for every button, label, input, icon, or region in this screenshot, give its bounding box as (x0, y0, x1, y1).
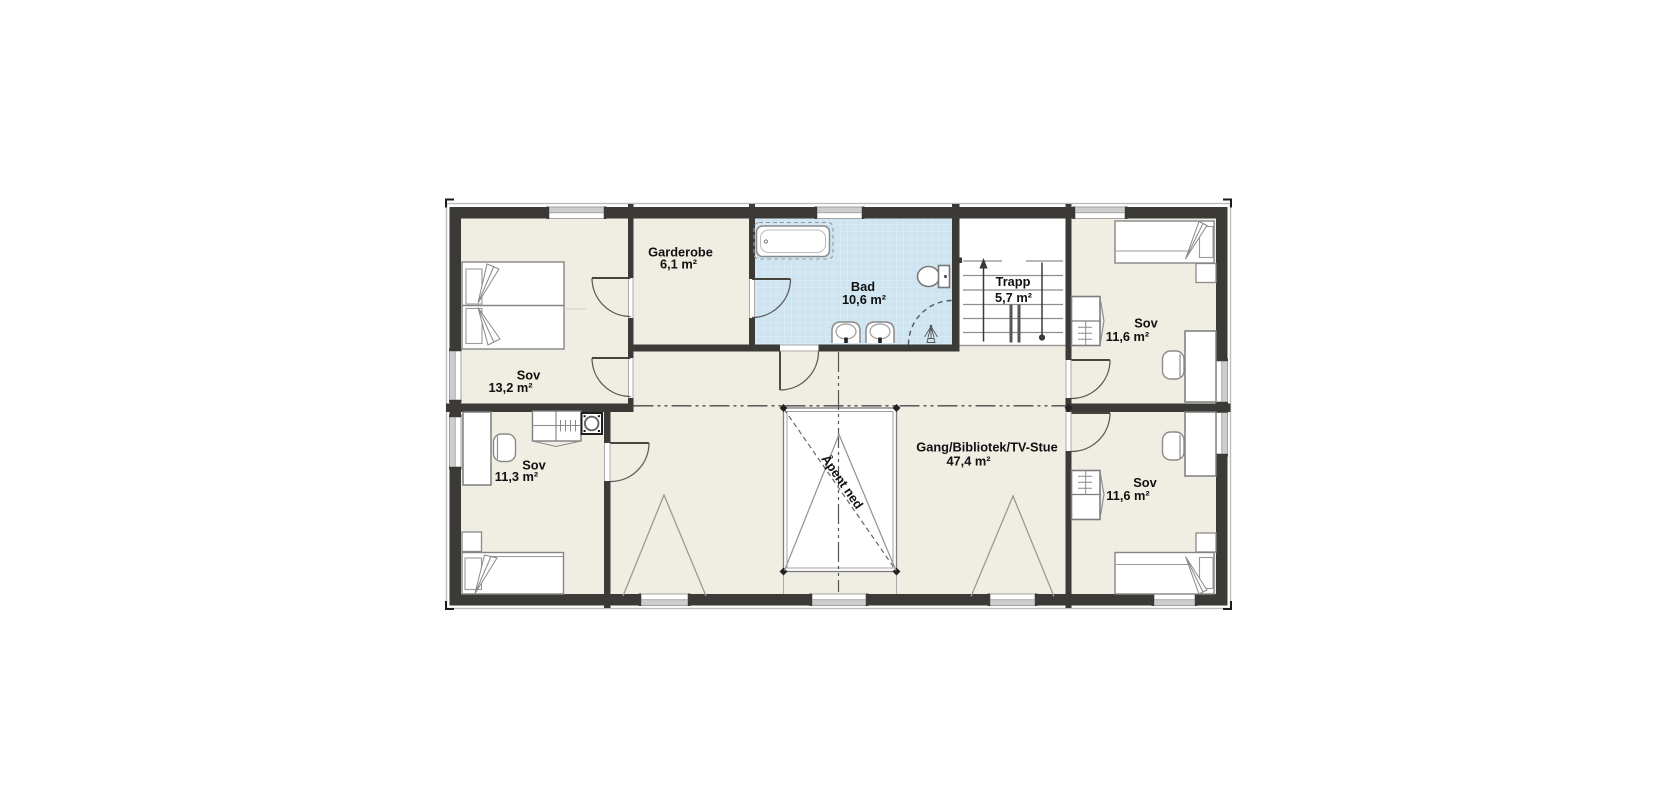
svg-text:6,1 m²: 6,1 m² (660, 257, 697, 272)
svg-text:13,2 m²: 13,2 m² (488, 380, 532, 395)
svg-text:Trapp: Trapp (996, 274, 1031, 289)
svg-text:11,3 m²: 11,3 m² (495, 469, 538, 484)
svg-text:10,6 m²: 10,6 m² (842, 292, 886, 307)
svg-text:11,6 m²: 11,6 m² (1106, 488, 1149, 503)
svg-text:47,4 m²: 47,4 m² (946, 454, 990, 469)
svg-text:5,7 m²: 5,7 m² (995, 290, 1032, 305)
svg-text:11,6 m²: 11,6 m² (1106, 329, 1149, 344)
svg-text:Gang/Bibliotek/TV-Stue: Gang/Bibliotek/TV-Stue (916, 440, 1058, 455)
